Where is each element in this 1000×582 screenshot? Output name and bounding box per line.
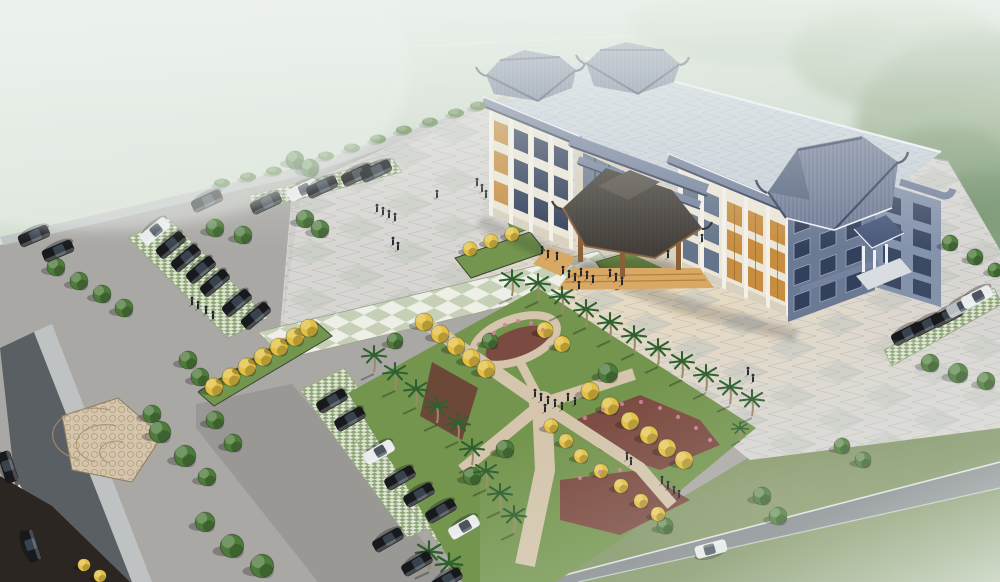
flower (529, 321, 533, 325)
flower (541, 328, 545, 332)
corner-mist-overlay (480, 340, 1000, 582)
rendering-canvas: Aerial perspective rendering of a three-… (0, 0, 1000, 582)
flower (516, 319, 520, 323)
flower (503, 323, 507, 327)
flower (492, 331, 496, 335)
architectural-rendering: Aerial perspective rendering of a three-… (0, 0, 1000, 582)
